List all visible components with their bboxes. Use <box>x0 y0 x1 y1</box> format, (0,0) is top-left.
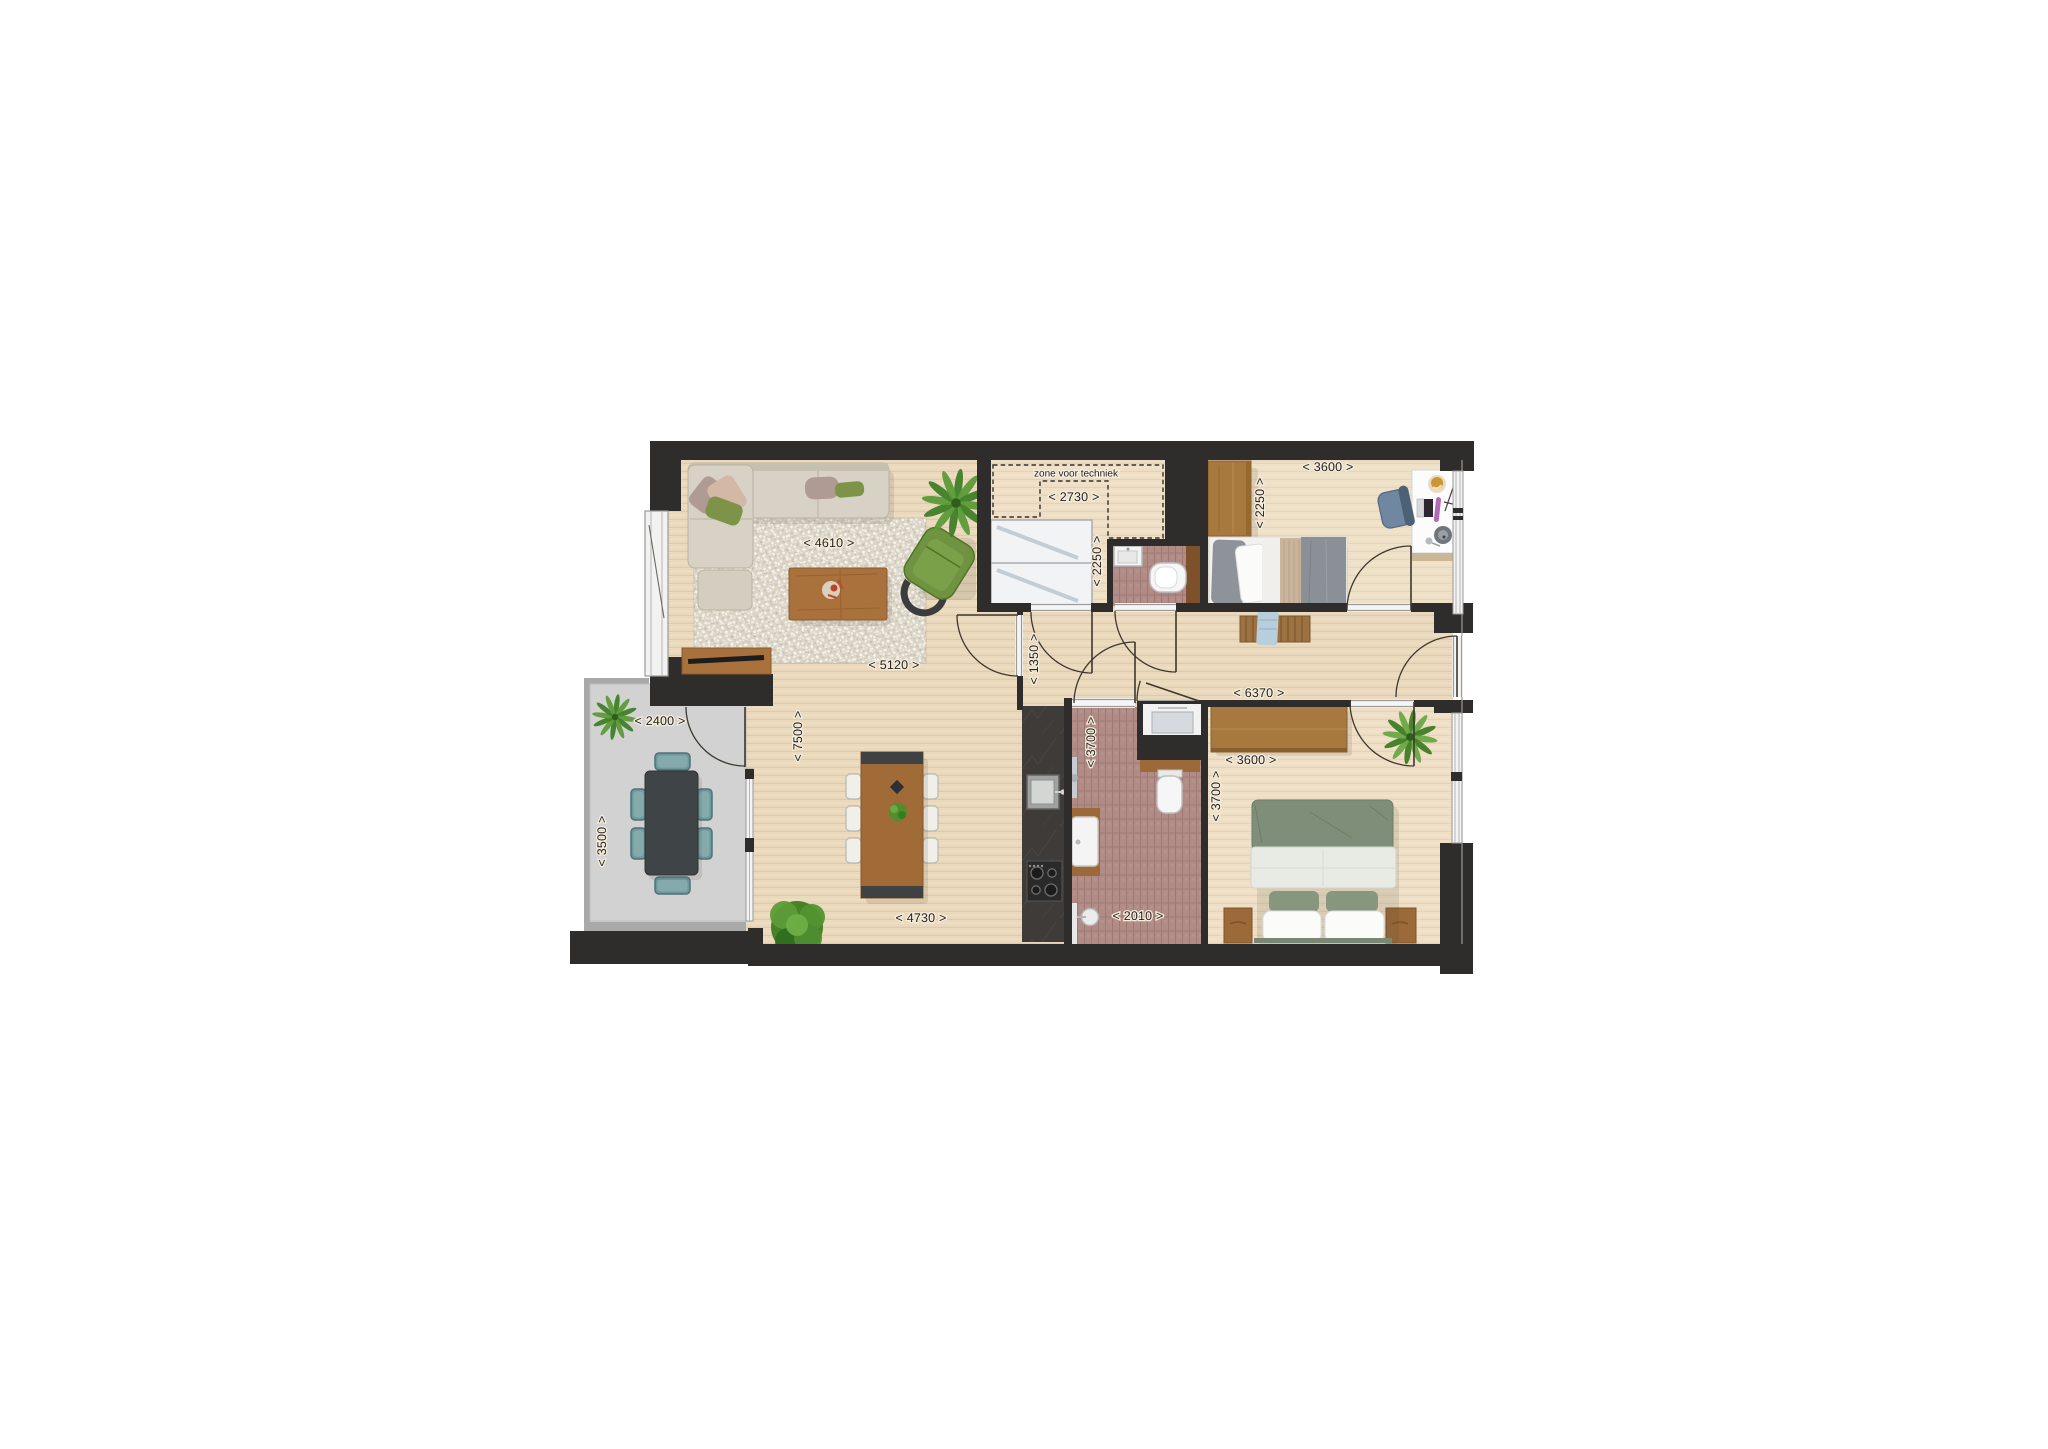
svg-text:< 1350 >: < 1350 > <box>1027 634 1041 685</box>
svg-text:< 5120 >: < 5120 > <box>869 658 920 672</box>
svg-text:< 2250 >: < 2250 > <box>1253 478 1267 529</box>
svg-text:< 3600 >: < 3600 > <box>1303 460 1354 474</box>
svg-text:zone voor techniek: zone voor techniek <box>1034 469 1119 480</box>
svg-text:< 2400 >: < 2400 > <box>635 714 686 728</box>
svg-text:< 2010 >: < 2010 > <box>1113 909 1164 923</box>
svg-text:< 4730 >: < 4730 > <box>896 911 947 925</box>
svg-text:< 7500 >: < 7500 > <box>791 711 805 762</box>
svg-text:< 6370 >: < 6370 > <box>1234 686 1285 700</box>
svg-text:< 3700 >: < 3700 > <box>1209 771 1223 822</box>
svg-text:< 4610 >: < 4610 > <box>804 536 855 550</box>
svg-text:< 3500 >: < 3500 > <box>595 816 609 867</box>
svg-text:< 2250 >: < 2250 > <box>1090 536 1104 587</box>
svg-text:< 3600 >: < 3600 > <box>1226 753 1277 767</box>
svg-text:< 3700 >: < 3700 > <box>1084 717 1098 768</box>
svg-text:< 2730 >: < 2730 > <box>1049 490 1100 504</box>
